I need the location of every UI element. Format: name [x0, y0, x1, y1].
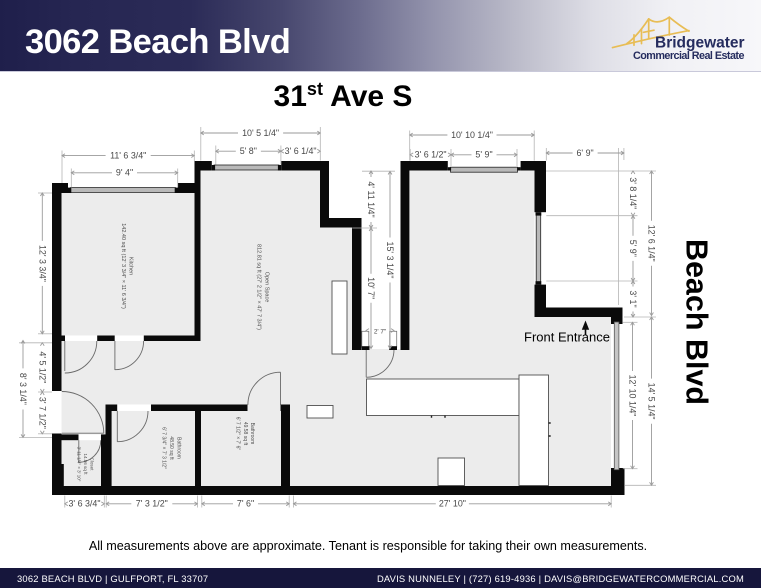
svg-text:6' 9": 6' 9": [577, 148, 594, 158]
svg-text:7' 6": 7' 6": [237, 499, 254, 509]
svg-text:48.50 sq ft: 48.50 sq ft: [168, 436, 174, 460]
svg-text:5' 9": 5' 9": [628, 240, 638, 257]
svg-text:812.81 sq ft (27' 2 1/2" × 47': 812.81 sq ft (27' 2 1/2" × 47' 7 3/4"): [256, 244, 262, 330]
svg-text:10' 7": 10' 7": [366, 277, 376, 299]
svg-text:12' 10 1/4": 12' 10 1/4": [628, 375, 638, 417]
svg-text:10' 5 1/4": 10' 5 1/4": [242, 128, 279, 138]
svg-text:2' 7": 2' 7": [374, 328, 386, 335]
svg-text:11' 6 3/4": 11' 6 3/4": [110, 151, 146, 161]
svg-text:4' 11 1/4": 4' 11 1/4": [366, 181, 376, 217]
svg-text:3' 7 1/2": 3' 7 1/2": [37, 397, 47, 429]
svg-text:3' 8 1/4": 3' 8 1/4": [628, 177, 638, 209]
svg-text:49.58 sq ft: 49.58 sq ft: [242, 422, 248, 446]
svg-text:7' 3 1/2": 7' 3 1/2": [136, 499, 168, 509]
svg-text:5' 8": 5' 8": [240, 146, 257, 156]
svg-text:14.56 sq ft: 14.56 sq ft: [83, 453, 88, 475]
svg-text:Front Entrance: Front Entrance: [524, 330, 610, 345]
svg-text:3' 1": 3' 1": [628, 290, 638, 307]
svg-text:5' 9": 5' 9": [475, 150, 492, 160]
svg-text:6' 7 3/4" × 7' 3 1/2": 6' 7 3/4" × 7' 3 1/2": [161, 427, 167, 469]
svg-text:3' 6 1/2": 3' 6 1/2": [415, 150, 447, 160]
svg-text:Closet: Closet: [89, 458, 94, 472]
svg-text:12' 3 3/4": 12' 3 3/4": [37, 245, 47, 282]
svg-text:9' 4": 9' 4": [116, 168, 133, 178]
svg-text:3' 6 3/4": 3' 6 3/4": [69, 499, 101, 509]
svg-text:4' 5 1/2": 4' 5 1/2": [37, 351, 47, 383]
svg-text:Bathroom: Bathroom: [249, 423, 255, 445]
svg-text:12' 6 1/4": 12' 6 1/4": [647, 225, 657, 262]
svg-text:3' 6 1/4": 3' 6 1/4": [285, 146, 317, 156]
svg-text:3' 11 1/4" × 3' 10": 3' 11 1/4" × 3' 10": [77, 447, 82, 482]
svg-text:Kitchen: Kitchen: [128, 257, 134, 275]
svg-text:6' 7 1/2" × 7' 6": 6' 7 1/2" × 7' 6": [234, 417, 240, 451]
svg-text:142.40 sq ft (12' 3 3/4" × 11': 142.40 sq ft (12' 3 3/4" × 11' 6 3/4"): [120, 223, 126, 309]
svg-text:27' 10": 27' 10": [439, 499, 466, 509]
svg-text:14' 5 1/4": 14' 5 1/4": [647, 383, 657, 420]
svg-text:15' 3 1/4": 15' 3 1/4": [385, 242, 395, 279]
svg-text:8' 3 1/4": 8' 3 1/4": [18, 373, 28, 405]
svg-text:10' 10 1/4": 10' 10 1/4": [451, 130, 493, 140]
svg-text:Bathroom: Bathroom: [175, 437, 181, 459]
svg-text:Open Space: Open Space: [263, 272, 269, 303]
